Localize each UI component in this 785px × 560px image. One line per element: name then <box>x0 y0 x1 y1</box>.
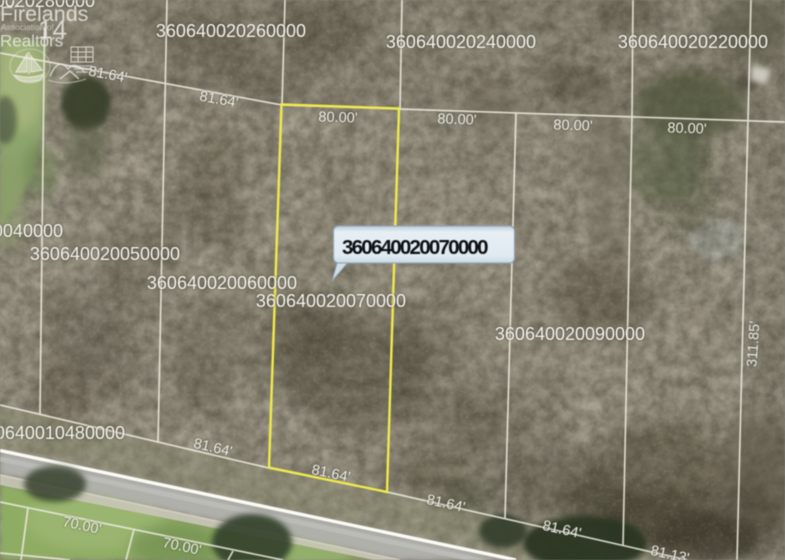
svg-text:80.00': 80.00' <box>553 117 593 134</box>
svg-text:360640020050000: 360640020050000 <box>30 244 180 264</box>
svg-text:Realtors: Realtors <box>0 32 63 51</box>
svg-text:360640020060000: 360640020060000 <box>147 273 297 293</box>
svg-text:80.00': 80.00' <box>437 111 477 128</box>
svg-text:360640010480000: 360640010480000 <box>0 423 125 443</box>
svg-text:360640020040000: 360640020040000 <box>0 221 63 241</box>
svg-text:360640020220000: 360640020220000 <box>618 32 768 52</box>
svg-text:311.85': 311.85' <box>744 320 763 367</box>
svg-text:360640020260000: 360640020260000 <box>156 21 306 41</box>
svg-text:80.00': 80.00' <box>667 120 707 137</box>
svg-text:360640020070000: 360640020070000 <box>342 236 488 259</box>
svg-text:80.00': 80.00' <box>318 109 358 126</box>
svg-text:360640020070000: 360640020070000 <box>256 291 406 311</box>
svg-text:360640020240000: 360640020240000 <box>386 32 536 52</box>
svg-text:360640020090000: 360640020090000 <box>495 324 645 344</box>
